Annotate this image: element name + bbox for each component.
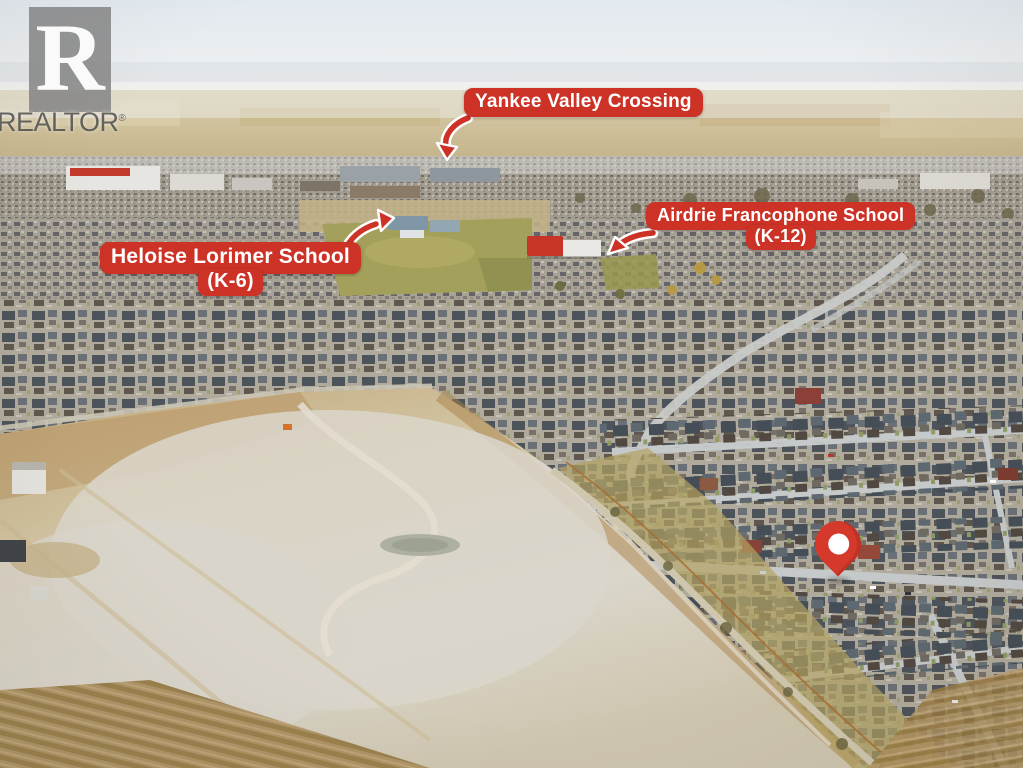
aerial-listing-photo: Yankee Valley Crossing Airdrie Francopho… [0, 0, 1023, 768]
pin-shadow [827, 577, 850, 584]
label-airdrie-text-line2: (K-12) [746, 225, 816, 250]
label-yankee-valley-crossing: Yankee Valley Crossing [464, 88, 703, 117]
excavator [283, 424, 292, 430]
label-yankee-text: Yankee Valley Crossing [464, 88, 703, 117]
sky [0, 0, 1023, 102]
label-heloise-lorimer-school: Heloise Lorimer School (K-6) [100, 242, 361, 296]
yankee-valley-arrow [432, 114, 502, 170]
label-airdrie-francophone-school: Airdrie Francophone School (K-12) [646, 202, 915, 250]
label-heloise-text-line2: (K-6) [198, 269, 263, 296]
